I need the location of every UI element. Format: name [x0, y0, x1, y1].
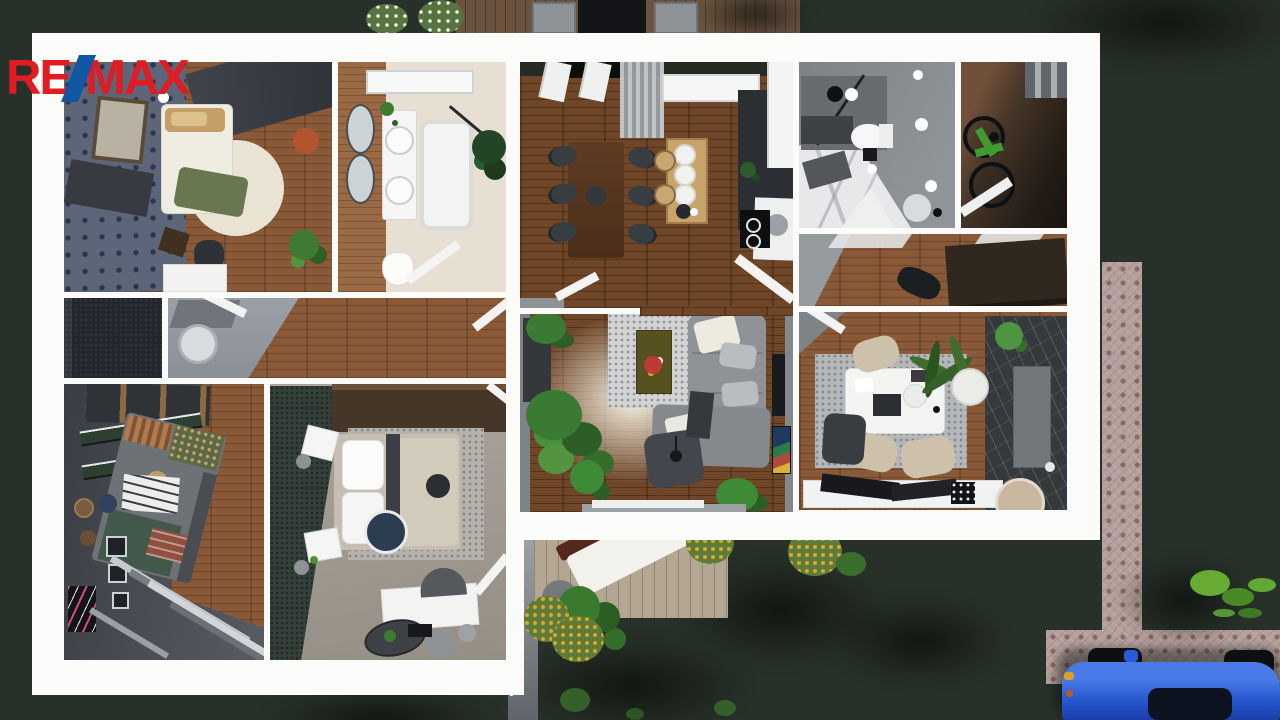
plant-shadow	[1118, 556, 1253, 644]
vase	[975, 488, 986, 499]
plate	[674, 164, 696, 186]
mirror	[346, 154, 375, 204]
ceiling-light	[1045, 462, 1055, 472]
remax-logo-max: MAX	[85, 54, 188, 103]
floor-disc	[458, 624, 476, 642]
flowering-bush	[366, 4, 408, 34]
bathtub	[420, 120, 473, 230]
wall-shelf	[863, 148, 877, 161]
wall-decor	[74, 498, 94, 518]
ground-foliage	[836, 552, 866, 576]
counter-plant	[740, 162, 756, 178]
bike-seat	[989, 132, 999, 142]
blind-slat	[89, 607, 169, 658]
round-rug	[903, 194, 931, 222]
door-swing	[734, 254, 793, 304]
door-swing	[555, 272, 600, 302]
monstera-plant	[526, 390, 582, 440]
potted-plant	[289, 230, 319, 260]
centerpiece	[586, 186, 606, 206]
plant	[995, 322, 1023, 350]
desk	[163, 264, 227, 292]
door-panel	[578, 62, 611, 102]
room-corridor	[799, 234, 1067, 306]
wall-highlight	[64, 298, 72, 378]
washing-machine	[178, 324, 218, 364]
wardrobe	[332, 384, 506, 432]
outdoor-table	[578, 0, 646, 33]
room-bike-storage	[961, 62, 1067, 228]
wall-decor	[98, 494, 117, 513]
flowering-bush	[418, 0, 464, 34]
car-mirror	[1124, 650, 1138, 662]
tv	[772, 354, 786, 416]
wall-frame	[112, 592, 129, 609]
room-bedroom-master	[270, 384, 506, 660]
dark-chair	[821, 413, 866, 466]
ceiling-light	[915, 118, 928, 131]
pendant-light	[827, 86, 843, 102]
black-spot	[933, 208, 942, 217]
cup	[690, 208, 698, 216]
burner	[746, 234, 761, 249]
floor-lamp	[951, 368, 989, 406]
outdoor-chair	[532, 2, 576, 34]
window-sill	[366, 70, 474, 94]
laptop	[873, 394, 901, 416]
car-cabin	[1148, 688, 1232, 720]
room-office	[799, 312, 1067, 510]
room-utility	[64, 298, 162, 378]
terrace-door	[592, 500, 704, 508]
garden-plant	[1190, 570, 1230, 596]
curtain	[620, 62, 664, 138]
sink	[385, 176, 414, 205]
tree-shadow	[830, 596, 1010, 686]
shower-bench	[801, 116, 853, 144]
car-headlight	[1064, 672, 1074, 680]
mirror	[346, 104, 375, 154]
room-kitchen-dining	[520, 62, 793, 308]
room-bedroom-2	[64, 384, 264, 660]
shelf-unit	[1025, 62, 1067, 98]
speaker-grid	[951, 482, 975, 504]
ceiling-light	[913, 70, 923, 80]
hallway-wood-floor	[226, 298, 506, 378]
dining-chair	[626, 221, 659, 247]
plant-small	[384, 630, 396, 642]
lamp	[294, 560, 309, 575]
floorplan-scene: RE MAX	[0, 0, 1280, 720]
shower-plant	[472, 130, 506, 164]
plant	[570, 460, 604, 494]
bar-stool	[654, 150, 676, 172]
room-living	[520, 314, 793, 512]
yellow-flower-bush	[552, 616, 604, 662]
fridge	[767, 62, 793, 168]
wall-decor	[80, 530, 96, 546]
kitchen-living-opening	[640, 306, 793, 316]
door-panel	[538, 62, 571, 102]
toilet-tank	[879, 124, 893, 148]
orange-pouf	[293, 128, 319, 154]
ceiling-light	[845, 88, 858, 101]
floor-lamp	[670, 450, 682, 462]
speaker	[686, 391, 715, 439]
vanity-plant	[380, 102, 394, 116]
console-desk	[945, 238, 1067, 306]
wall-frame	[106, 536, 127, 557]
sink	[385, 126, 414, 155]
cabinet	[1013, 366, 1051, 468]
round-chair	[364, 510, 408, 554]
bench	[419, 566, 467, 597]
ceiling-light	[925, 180, 937, 192]
toilet-roll	[867, 164, 877, 174]
plate	[674, 144, 696, 166]
skylight	[828, 234, 912, 248]
burner	[746, 218, 761, 233]
plate	[674, 184, 696, 206]
ground-foliage	[560, 688, 590, 712]
white-pillow	[342, 440, 384, 490]
car-foglight	[1066, 690, 1073, 697]
pillow	[171, 112, 207, 126]
picture-frame	[91, 95, 149, 164]
kettle	[676, 204, 691, 219]
lamp	[296, 454, 311, 469]
flower-bouquet	[644, 356, 662, 374]
right-wall	[785, 314, 793, 512]
outdoor-chair	[654, 2, 698, 34]
room-hallway	[168, 298, 506, 378]
white-striped-pillow	[122, 474, 180, 514]
bar-stool	[654, 184, 676, 206]
remax-logo-re: RE	[6, 54, 70, 103]
room-bathroom-2	[799, 62, 955, 228]
sofa-cushion	[721, 380, 759, 407]
plant-small	[310, 556, 318, 564]
room-bathroom-1	[338, 62, 506, 292]
mouse	[933, 406, 940, 413]
chair	[894, 262, 945, 304]
papers	[854, 377, 874, 393]
sofa-cushion	[719, 342, 758, 371]
remax-logo: RE MAX	[6, 54, 188, 103]
wall-art	[772, 426, 791, 474]
dark-cushion	[426, 474, 450, 498]
remote-tray	[408, 624, 432, 637]
